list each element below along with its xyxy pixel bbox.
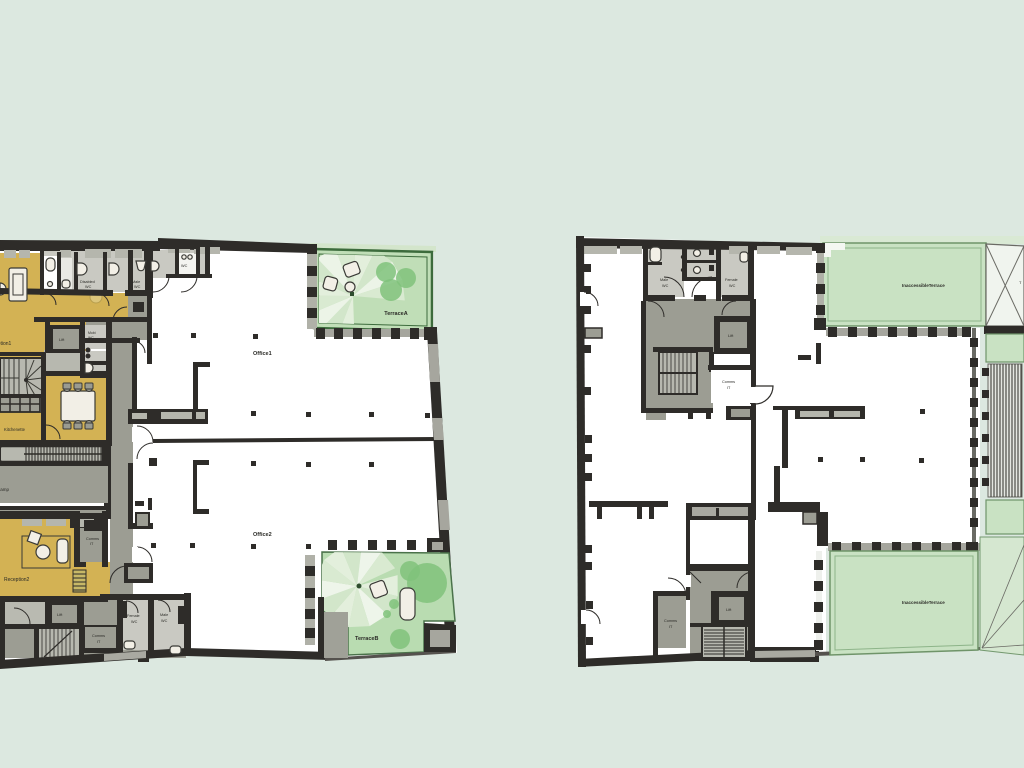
svg-text:Reception2: Reception2 xyxy=(4,577,30,583)
svg-text:Office1: Office1 xyxy=(253,351,272,357)
svg-text:WC: WC xyxy=(88,336,94,340)
svg-text:WC: WC xyxy=(181,264,188,268)
svg-text:WC: WC xyxy=(131,620,138,624)
svg-text:Lift: Lift xyxy=(57,612,63,617)
svg-text:Comms: Comms xyxy=(92,634,105,638)
svg-text:WC: WC xyxy=(662,284,669,288)
svg-text:Disabled: Disabled xyxy=(80,280,95,284)
svg-text:Comms: Comms xyxy=(722,380,735,384)
svg-text:Lift: Lift xyxy=(728,333,734,338)
svg-text:Female: Female xyxy=(127,614,140,618)
svg-text:Male: Male xyxy=(160,613,168,617)
svg-text:Lift: Lift xyxy=(59,337,65,342)
svg-text:Reception1: Reception1 xyxy=(0,341,12,347)
svg-text:InaccessibleTerrace: InaccessibleTerrace xyxy=(902,600,945,605)
svg-text:Office2: Office2 xyxy=(253,532,272,538)
svg-text:WC: WC xyxy=(85,285,92,289)
svg-text:Male: Male xyxy=(132,280,140,284)
svg-text:Ramp: Ramp xyxy=(0,487,10,492)
svg-text:Female: Female xyxy=(725,278,738,282)
svg-text:TerraceA: TerraceA xyxy=(384,311,407,317)
svg-text:Kitchenette: Kitchenette xyxy=(4,427,26,432)
svg-text:Mobi: Mobi xyxy=(88,331,96,335)
svg-text:WC: WC xyxy=(134,285,141,289)
svg-text:Lift: Lift xyxy=(726,607,732,612)
svg-text:WC: WC xyxy=(161,619,168,623)
svg-text:WC: WC xyxy=(729,284,736,288)
svg-text:Comms: Comms xyxy=(664,619,677,623)
svg-text:Comms: Comms xyxy=(86,537,99,541)
svg-text:TerraceB: TerraceB xyxy=(355,636,378,642)
svg-text:InaccessibleTerrace: InaccessibleTerrace xyxy=(902,283,945,288)
svg-text:Male: Male xyxy=(660,278,668,282)
